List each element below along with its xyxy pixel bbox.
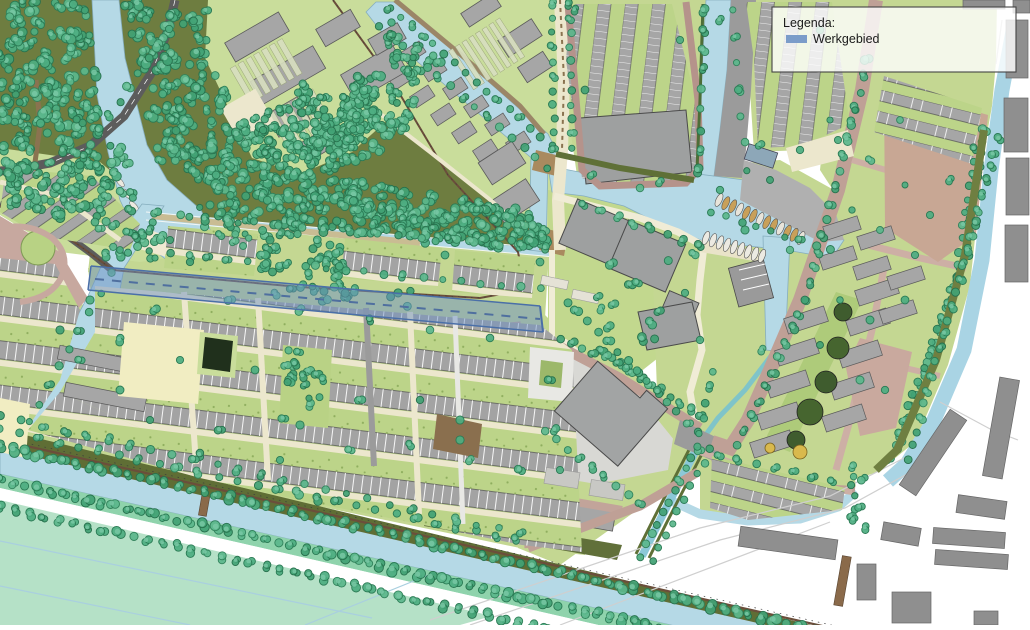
svg-text:Werkgebied: Werkgebied: [813, 32, 880, 46]
svg-text:Legenda:: Legenda:: [783, 16, 835, 30]
